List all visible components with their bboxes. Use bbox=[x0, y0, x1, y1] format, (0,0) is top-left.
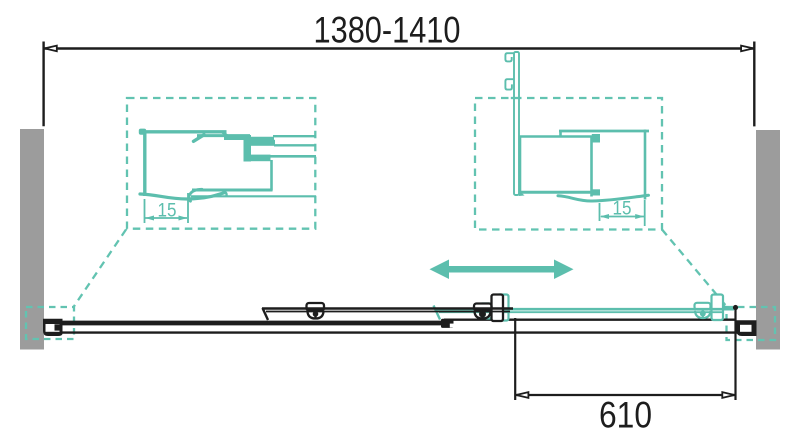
svg-text:15: 15 bbox=[613, 199, 632, 220]
svg-text:1380-1410: 1380-1410 bbox=[314, 10, 461, 51]
svg-text:15: 15 bbox=[158, 201, 177, 222]
svg-text:610: 610 bbox=[599, 394, 652, 436]
